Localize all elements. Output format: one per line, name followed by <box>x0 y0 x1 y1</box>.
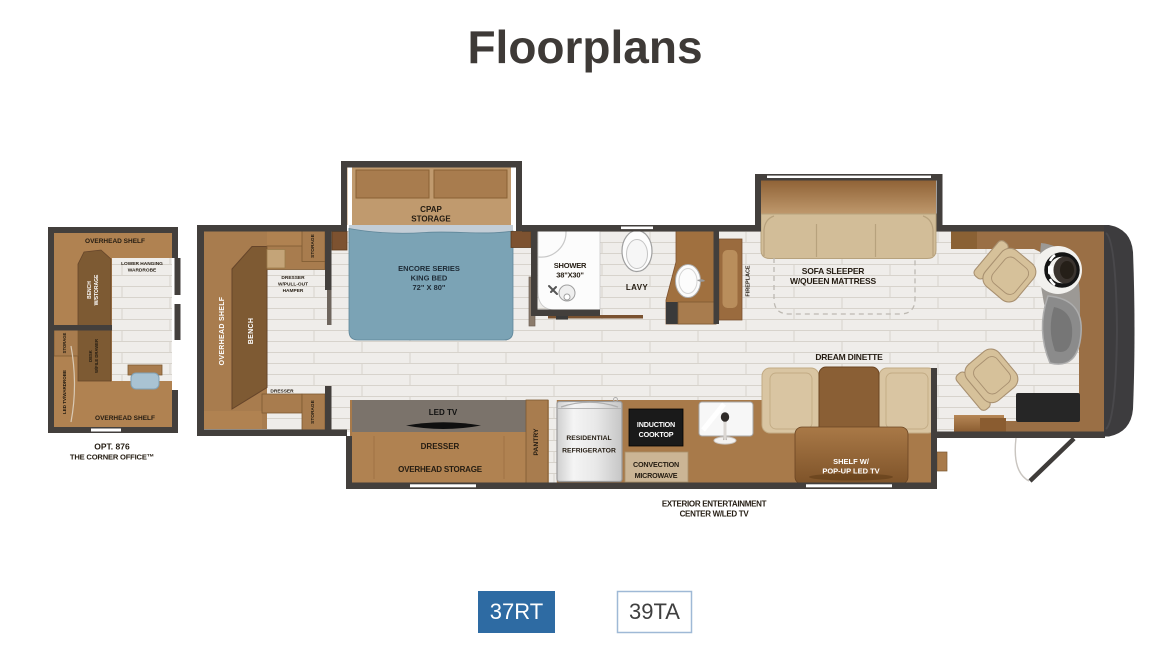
svg-text:SHELF W/: SHELF W/ <box>833 457 870 466</box>
svg-text:LED TV: LED TV <box>429 408 458 417</box>
svg-text:MICROWAVE: MICROWAVE <box>635 471 678 480</box>
svg-text:37RT: 37RT <box>490 599 543 624</box>
svg-text:LOWER HANGING: LOWER HANGING <box>121 261 163 267</box>
svg-text:OVERHEAD STORAGE: OVERHEAD STORAGE <box>398 465 483 474</box>
svg-text:OVERHEAD SHELF: OVERHEAD SHELF <box>95 415 155 422</box>
svg-text:POP-UP LED TV: POP-UP LED TV <box>822 467 879 476</box>
svg-text:STORAGE: STORAGE <box>310 233 316 257</box>
svg-text:STORAGE: STORAGE <box>310 399 316 423</box>
svg-text:SOFA SLEEPER: SOFA SLEEPER <box>802 266 865 276</box>
svg-text:DREAM DINETTE: DREAM DINETTE <box>815 352 883 362</box>
svg-text:38"X30": 38"X30" <box>556 271 584 280</box>
svg-text:BENCH: BENCH <box>87 281 93 299</box>
svg-text:DRESSER: DRESSER <box>421 442 460 451</box>
svg-text:PANTRY: PANTRY <box>533 428 540 456</box>
svg-text:COOKTOP: COOKTOP <box>639 430 674 439</box>
svg-text:W/QUEEN MATTRESS: W/QUEEN MATTRESS <box>790 276 876 286</box>
svg-text:KING BED: KING BED <box>411 274 448 283</box>
svg-text:FIREPLACE: FIREPLACE <box>746 265 752 297</box>
svg-text:W/FILE DRAWER: W/FILE DRAWER <box>94 339 99 373</box>
svg-text:REFRIGERATOR: REFRIGERATOR <box>562 448 616 455</box>
svg-text:BENCH: BENCH <box>248 318 255 344</box>
svg-text:WARDROBE: WARDROBE <box>128 268 157 274</box>
svg-text:INDUCTION: INDUCTION <box>637 420 675 429</box>
svg-text:72" X 80": 72" X 80" <box>413 283 446 292</box>
svg-text:ENCORE SERIES: ENCORE SERIES <box>398 264 460 273</box>
svg-text:LAVY: LAVY <box>626 283 649 292</box>
svg-text:CONVECTION: CONVECTION <box>633 460 679 469</box>
svg-text:W/STORAGE: W/STORAGE <box>94 274 100 305</box>
svg-text:RESIDENTIAL: RESIDENTIAL <box>566 435 611 442</box>
svg-text:OVERHEAD SHELF: OVERHEAD SHELF <box>219 296 226 365</box>
svg-text:39TA: 39TA <box>629 599 680 624</box>
svg-text:STORAGE: STORAGE <box>62 332 67 353</box>
svg-text:OPT. 876: OPT. 876 <box>94 442 130 452</box>
svg-text:EXTERIOR ENTERTAINMENT: EXTERIOR ENTERTAINMENT <box>662 500 767 509</box>
svg-text:DESK: DESK <box>88 350 93 362</box>
svg-text:OVERHEAD SHELF: OVERHEAD SHELF <box>85 238 145 245</box>
svg-text:LED TV/WARDROBE: LED TV/WARDROBE <box>62 370 67 414</box>
svg-text:SHOWER: SHOWER <box>554 261 587 270</box>
svg-text:STORAGE: STORAGE <box>411 215 451 224</box>
svg-text:THE CORNER OFFICE™: THE CORNER OFFICE™ <box>70 453 154 462</box>
svg-text:W/PULL-OUT: W/PULL-OUT <box>278 282 308 288</box>
svg-text:DRESSER: DRESSER <box>281 275 305 281</box>
svg-text:CENTER W/LED TV: CENTER W/LED TV <box>680 510 750 519</box>
svg-text:HAMPER: HAMPER <box>283 288 304 294</box>
svg-text:Floorplans: Floorplans <box>467 21 702 73</box>
svg-text:CPAP: CPAP <box>420 205 442 214</box>
